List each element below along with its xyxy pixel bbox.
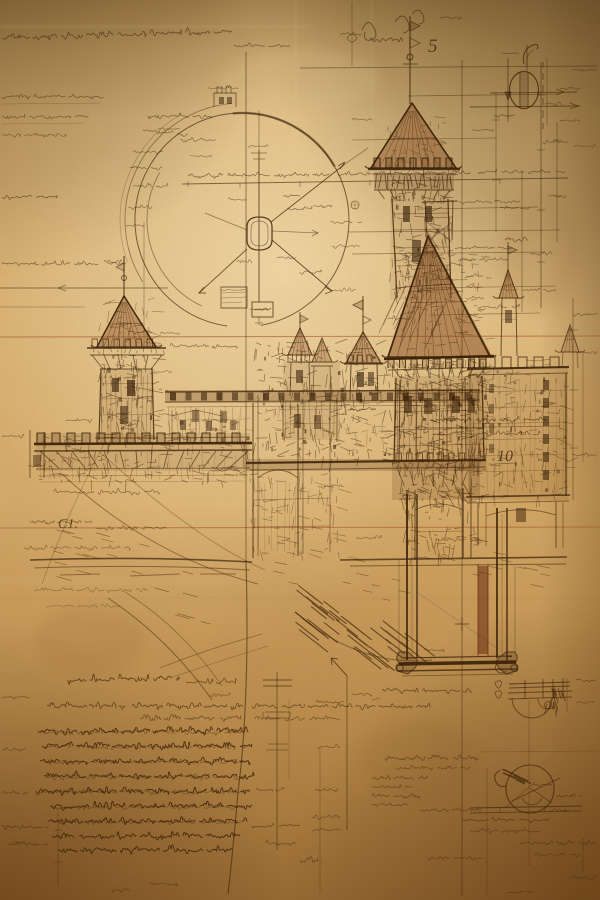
svg-text:C1.: C1. — [58, 517, 78, 532]
svg-text:5: 5 — [428, 36, 438, 57]
